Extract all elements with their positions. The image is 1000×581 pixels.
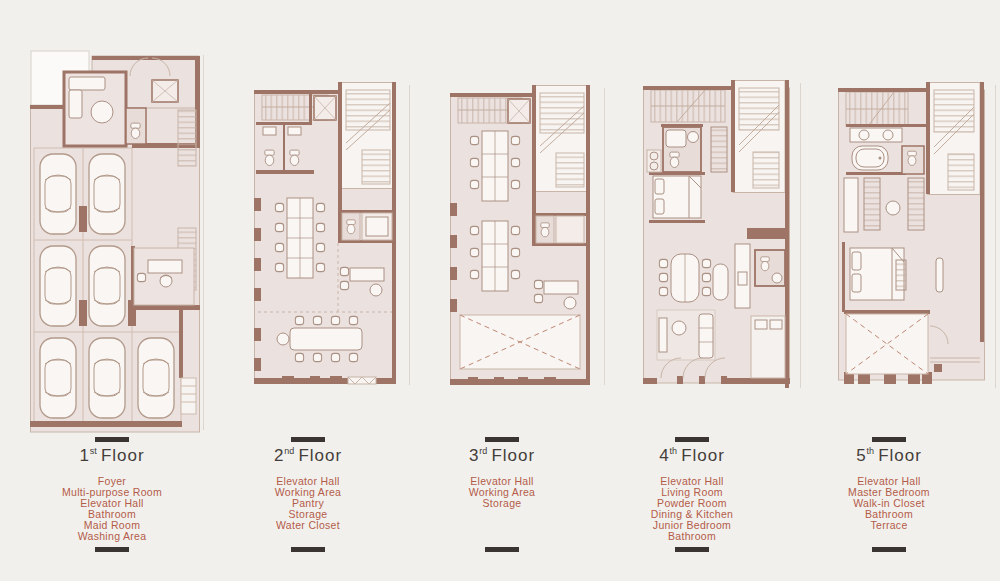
floor-number: 5 <box>856 446 866 465</box>
room-list: Elevator HallLiving RoomPowder RoomDinin… <box>592 476 792 542</box>
balcony <box>751 316 785 378</box>
room-label: Terrace <box>789 520 989 531</box>
elevator <box>152 80 178 102</box>
floor-word: Floor <box>491 446 535 465</box>
toilet-icon <box>265 150 274 165</box>
round-table <box>91 101 113 123</box>
sink <box>288 127 301 135</box>
floor-title: 2ndFloor <box>208 446 408 466</box>
floor-caption-2: 2ndFloor Elevator HallWorking AreaPantry… <box>208 437 408 557</box>
floor-plan-sheet: 1stFloor FoyerMulti-purpose RoomElevator… <box>0 0 1000 581</box>
pillow <box>852 274 861 292</box>
divider-bar <box>675 437 709 442</box>
maid-room <box>134 248 194 305</box>
armchair <box>672 321 686 335</box>
floor-plan-4th <box>643 80 790 390</box>
bench <box>896 260 906 290</box>
toilet-icon <box>131 123 140 138</box>
floor-caption-1: 1stFloor FoyerMulti-purpose RoomElevator… <box>12 437 212 557</box>
toilet-icon <box>670 152 679 167</box>
dresser <box>844 178 858 232</box>
elevator <box>314 96 336 120</box>
floor-plan-5th <box>838 82 985 390</box>
toilet-icon <box>290 150 299 165</box>
toilet-icon <box>347 220 355 234</box>
stairs <box>934 90 974 132</box>
window <box>348 377 376 384</box>
bathtub <box>852 146 888 170</box>
pillow <box>655 179 664 194</box>
end-chair <box>277 333 289 345</box>
kitchen-island <box>713 264 728 300</box>
floor-title: 1stFloor <box>12 446 212 466</box>
divider-bar <box>485 437 519 442</box>
stairs <box>540 93 584 133</box>
floor-plan-2nd <box>254 82 396 385</box>
site-boundary-line <box>203 55 204 430</box>
stairs <box>346 90 390 130</box>
site-boundary-line <box>604 88 605 385</box>
floor-word: Floor <box>101 446 145 465</box>
divider-bar <box>95 547 129 552</box>
divider-bar <box>675 547 709 552</box>
terrace <box>846 314 928 374</box>
dining-area <box>659 254 710 302</box>
floor-ordinal: nd <box>284 446 294 456</box>
wardrobe <box>711 127 727 172</box>
car-icon <box>89 338 125 418</box>
divider-bar <box>291 547 325 552</box>
floor-number: 2 <box>274 446 284 465</box>
car-icon <box>40 338 76 418</box>
kitchen-counter <box>735 244 750 308</box>
vanity-counter <box>850 128 902 142</box>
storage-room <box>556 216 584 243</box>
divider-bar <box>95 437 129 442</box>
sink <box>263 127 276 135</box>
floor-ordinal: st <box>90 446 97 456</box>
room-label: Storage <box>402 498 602 509</box>
car-icon <box>40 246 76 326</box>
tv-cabinet <box>659 318 667 352</box>
void-area <box>460 315 580 369</box>
floor-title: 3rdFloor <box>402 446 602 466</box>
storage-shelf <box>366 217 388 236</box>
ac-unit <box>770 320 782 329</box>
floor-caption-5: 5thFloor Elevator HallMaster BedroomWalk… <box>789 437 989 557</box>
floor-number: 4 <box>659 446 669 465</box>
floor-caption-4: 4thFloor Elevator HallLiving RoomPowder … <box>592 437 792 557</box>
room-list: Elevator HallMaster BedroomWalk-in Close… <box>789 476 989 531</box>
wardrobe <box>908 178 924 230</box>
stairs <box>362 150 390 184</box>
room-list: FoyerMulti-purpose RoomElevator HallBath… <box>12 476 212 542</box>
room-label: Bathroom <box>592 531 792 542</box>
room-list: Elevator HallWorking AreaPantryStorageWa… <box>208 476 408 531</box>
sink <box>772 273 782 283</box>
divider-bar <box>291 437 325 442</box>
desk <box>148 260 182 273</box>
floor-word: Floor <box>298 446 342 465</box>
desk <box>544 281 578 294</box>
car-icon <box>89 154 125 234</box>
stairs <box>753 152 779 188</box>
floor-plan-3rd <box>450 85 590 385</box>
stair-hall <box>928 83 980 195</box>
multi-purpose-room <box>64 72 126 146</box>
sink <box>688 132 699 143</box>
living-room <box>657 310 715 360</box>
room-label: Washing Area <box>12 531 212 542</box>
elevator <box>508 99 530 123</box>
car-icon <box>40 154 76 234</box>
floor-title: 4thFloor <box>592 446 792 466</box>
floor-number: 3 <box>469 446 479 465</box>
stair-hall <box>733 81 785 193</box>
entry-steps <box>181 378 196 414</box>
desk <box>350 268 384 281</box>
stair-hall <box>534 86 589 192</box>
sofa <box>69 90 82 118</box>
room-list: Elevator HallWorking AreaStorage <box>402 476 602 509</box>
pantry-table <box>290 328 362 350</box>
ac-unit <box>755 320 767 329</box>
floor-ordinal: th <box>670 446 678 456</box>
pillow <box>655 199 664 214</box>
desk-chair <box>370 284 382 296</box>
site-boundary-line <box>995 85 996 388</box>
floor-word: Floor <box>681 446 725 465</box>
wardrobe <box>864 178 880 230</box>
floor-ordinal: rd <box>479 446 487 456</box>
car-icon <box>89 246 125 326</box>
room-label: Water Closet <box>208 520 408 531</box>
stairs <box>948 154 974 190</box>
car-icon <box>138 338 174 418</box>
sofa <box>699 314 713 358</box>
floor-word: Floor <box>878 446 922 465</box>
floor-caption-3: 3rdFloor Elevator HallWorking AreaStorag… <box>402 437 602 557</box>
divider-bar <box>872 437 906 442</box>
toilet-icon <box>541 223 549 237</box>
laundry-closet <box>647 150 661 172</box>
pillow <box>852 252 861 270</box>
stair-hall <box>340 83 395 189</box>
floor-ordinal: th <box>867 446 875 456</box>
stairs <box>556 153 584 187</box>
powder-room <box>755 250 785 286</box>
ottoman <box>886 201 900 215</box>
shower <box>666 130 686 147</box>
bathroom <box>663 127 701 172</box>
chair-icon <box>137 273 145 281</box>
floor-title: 5thFloor <box>789 446 989 466</box>
tv-console <box>936 258 943 292</box>
toilet-icon <box>908 151 917 165</box>
toilet-icon <box>761 257 769 271</box>
site-boundary-line <box>800 83 801 388</box>
floor-plan-1st <box>30 50 200 433</box>
divider-bar <box>872 547 906 552</box>
junior-bedroom <box>653 176 701 218</box>
divider-bar <box>485 547 519 552</box>
sofa <box>69 77 105 90</box>
desk-chair <box>564 297 576 309</box>
site-boundary-line <box>409 85 410 385</box>
floor-number: 1 <box>79 446 89 465</box>
stairs <box>739 88 779 130</box>
